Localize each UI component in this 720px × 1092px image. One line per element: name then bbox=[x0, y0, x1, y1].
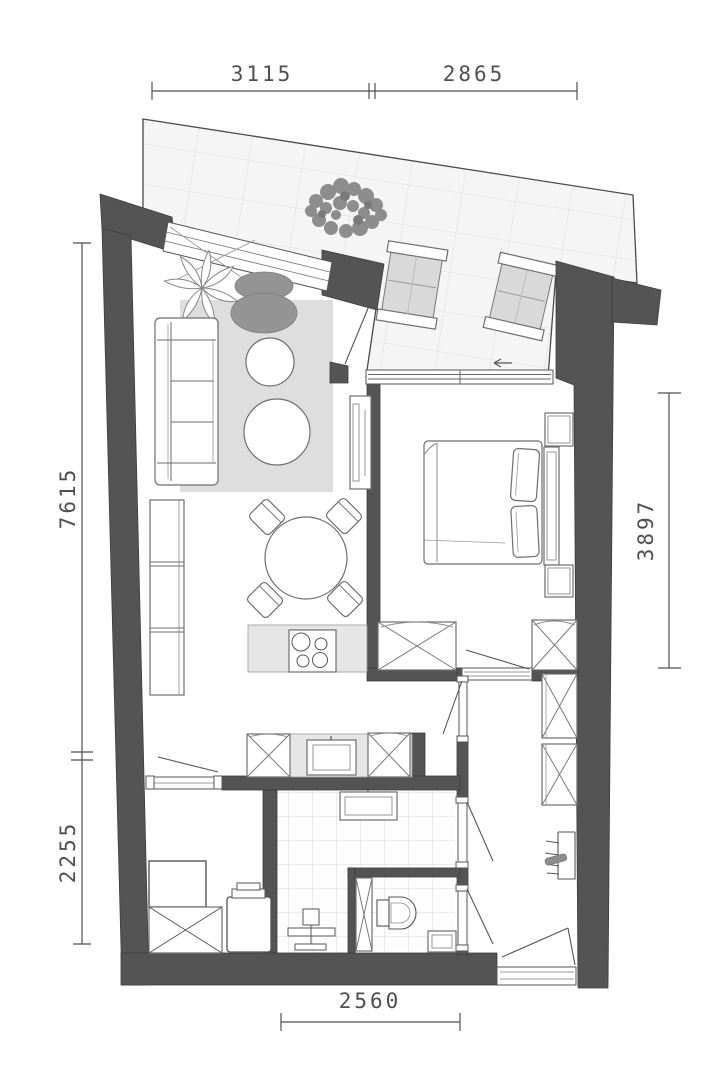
wall-hall-mid bbox=[457, 737, 468, 801]
dim-left-upper-label: 7615 bbox=[56, 467, 80, 530]
storage-room bbox=[149, 861, 271, 953]
wall-right-slant bbox=[612, 278, 661, 325]
wall-bath-wc-horizontal bbox=[348, 868, 460, 877]
coffee-table-small bbox=[246, 338, 294, 386]
dim-right-label: 3897 bbox=[634, 499, 658, 562]
bathroom-door-leaf bbox=[467, 802, 493, 861]
floor-plan-page: 3115 2865 7615 2255 3897 2560 bbox=[0, 0, 720, 1092]
balcony-door-leaf bbox=[345, 306, 369, 364]
entrance-door-leaf bbox=[502, 928, 568, 957]
floor-plan-svg: 3115 2865 7615 2255 3897 2560 bbox=[0, 0, 720, 1092]
kitchen-sink-icon bbox=[307, 736, 356, 775]
entrance-door-swing bbox=[568, 928, 575, 965]
cooktop-icon bbox=[289, 630, 336, 672]
wardrobe-left bbox=[378, 622, 456, 670]
bookshelf bbox=[150, 500, 184, 695]
pillow bbox=[510, 448, 540, 502]
dim-left: 7615 2255 bbox=[56, 243, 93, 944]
hall-closet bbox=[542, 674, 577, 738]
wall-left bbox=[102, 228, 149, 985]
dim-top-right-label: 2865 bbox=[443, 62, 506, 86]
dim-left-lower-label: 2255 bbox=[56, 821, 80, 884]
bathroom-door-frame bbox=[458, 801, 467, 864]
dim-bottom-label: 2560 bbox=[339, 989, 402, 1013]
bedroom bbox=[378, 413, 577, 670]
dining-set bbox=[246, 497, 364, 619]
coat-rack-icon bbox=[544, 832, 575, 879]
toilet-icon bbox=[377, 897, 416, 929]
dim-bottom: 2560 bbox=[281, 989, 460, 1031]
wc-door-frame bbox=[458, 890, 467, 947]
dim-top-left-label: 3115 bbox=[231, 62, 294, 86]
dining-table bbox=[265, 517, 347, 599]
wall-bottom bbox=[121, 953, 497, 985]
nightstand bbox=[545, 413, 573, 446]
bedroom-door-sill bbox=[462, 668, 532, 680]
hallway bbox=[542, 674, 577, 879]
pillow bbox=[511, 505, 540, 557]
wc-sink-icon bbox=[428, 931, 456, 952]
wall-sliding-pier bbox=[330, 362, 348, 383]
storage-cabinet bbox=[149, 907, 222, 953]
hall-door-frame bbox=[459, 681, 467, 737]
tall-cabinet bbox=[356, 878, 372, 951]
nightstand bbox=[545, 565, 573, 597]
bedroom-door-leaf bbox=[466, 650, 529, 669]
base-cabinet-left bbox=[247, 734, 290, 777]
base-cabinet-right bbox=[368, 733, 410, 777]
wc-door-leaf bbox=[467, 889, 493, 944]
sofa bbox=[155, 318, 218, 485]
wall-living-service bbox=[222, 776, 460, 790]
hall-closet bbox=[542, 744, 577, 805]
storage-counter bbox=[149, 861, 206, 907]
storage-door-leaf bbox=[158, 757, 218, 772]
dim-top: 3115 2865 bbox=[152, 62, 577, 100]
armchair bbox=[231, 272, 297, 333]
washing-machine-icon bbox=[227, 883, 271, 952]
wall-bath-wc-vertical bbox=[348, 868, 355, 953]
coffee-table-large bbox=[244, 399, 310, 465]
wardrobe-right bbox=[532, 620, 577, 670]
headboard bbox=[544, 447, 559, 565]
entrance-threshold bbox=[497, 967, 576, 985]
dim-right: 3897 bbox=[634, 393, 681, 668]
bed bbox=[424, 441, 542, 564]
tv-unit bbox=[350, 396, 371, 489]
